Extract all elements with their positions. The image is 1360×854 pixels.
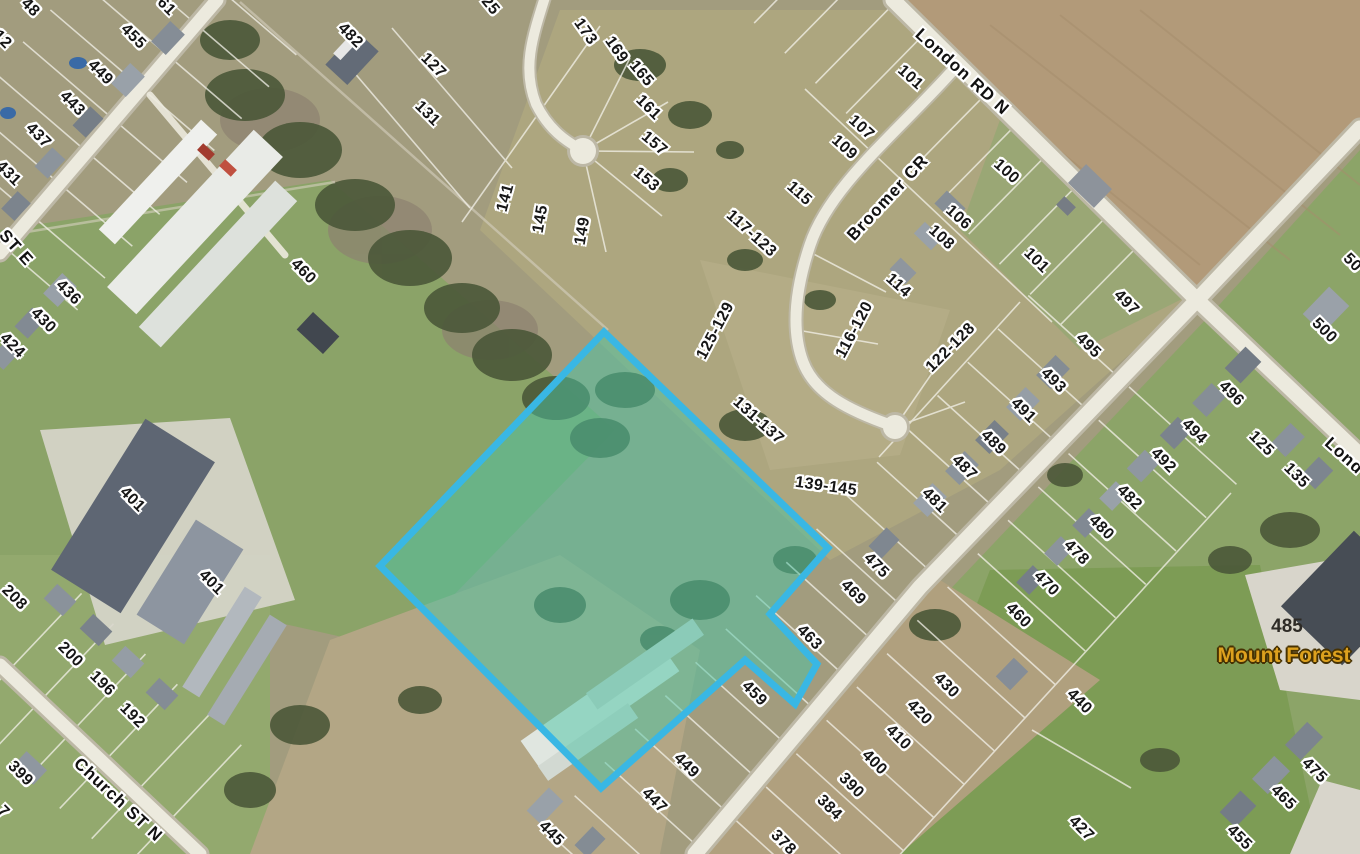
map-viewport[interactable]: 4812614554494434374314821271312517316916… [0,0,1360,854]
aerial-imagery [0,0,1360,854]
